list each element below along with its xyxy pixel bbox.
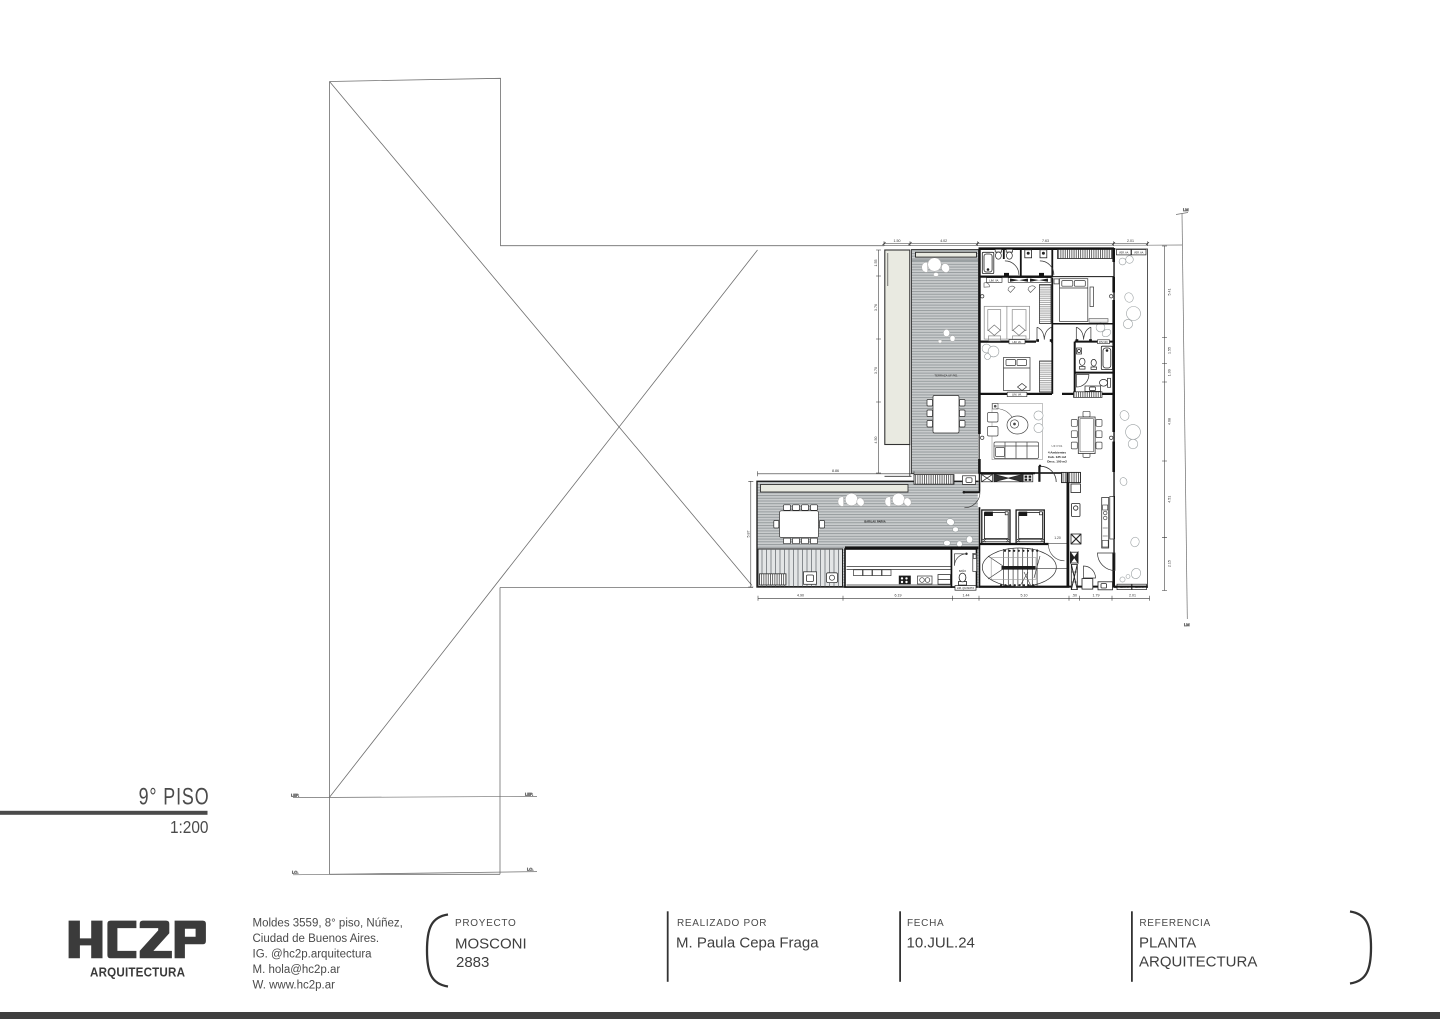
svg-text:LIM. QUINCHO: LIM. QUINCHO	[957, 587, 974, 590]
svg-text:2.15: 2.15	[1168, 560, 1172, 567]
svg-text:IG. @hc2p.arquitectura: IG. @hc2p.arquitectura	[253, 949, 373, 961]
svg-text:2.01: 2.01	[1129, 594, 1136, 598]
svg-text:6.19: 6.19	[895, 594, 902, 598]
svg-text:1.55: 1.55	[874, 260, 878, 267]
svg-text:3.70: 3.70	[874, 367, 878, 374]
svg-text:LEP.: LEP.	[525, 792, 533, 797]
svg-text:PROYECTO: PROYECTO	[455, 918, 517, 929]
svg-text:4.50: 4.50	[874, 437, 878, 444]
svg-text:1:200: 1:200	[170, 818, 209, 837]
svg-text:LIM. VA.: LIM. VA.	[1013, 341, 1022, 344]
svg-text:1.09: 1.09	[1168, 369, 1172, 376]
svg-text:1.44: 1.44	[963, 594, 970, 598]
svg-text:4 Ambientes: 4 Ambientes	[1048, 451, 1067, 455]
svg-text:7.63: 7.63	[1042, 239, 1049, 243]
svg-text:1.50: 1.50	[894, 239, 901, 243]
svg-text:4.90: 4.90	[797, 594, 804, 598]
svg-text:9° PISO: 9° PISO	[139, 783, 210, 810]
svg-text:4.02: 4.02	[940, 239, 947, 243]
svg-text:LM: LM	[1184, 622, 1190, 627]
svg-text:10.JUL.24: 10.JUL.24	[907, 935, 975, 952]
svg-text:1.55: 1.55	[1168, 347, 1172, 354]
svg-text:BAÑO: BAÑO	[959, 570, 966, 573]
svg-text:MOSCONI: MOSCONI	[455, 936, 527, 953]
svg-text:1.20: 1.20	[1054, 536, 1061, 540]
svg-text:BAR/LAV. PARVA: BAR/LAV. PARVA	[864, 520, 885, 524]
svg-text:5.10: 5.10	[1021, 594, 1028, 598]
svg-text:P/S VFC: P/S VFC	[1099, 342, 1108, 344]
svg-text:UF P.01: UF P.01	[1052, 444, 1063, 448]
svg-text:2883: 2883	[456, 954, 489, 971]
svg-text:REFERENCIA: REFERENCIA	[1139, 918, 1210, 929]
svg-text:8.86: 8.86	[832, 469, 839, 473]
svg-text:LO.: LO.	[292, 870, 298, 875]
svg-text:FECHA: FECHA	[907, 918, 944, 929]
svg-text:4.68: 4.68	[1168, 418, 1172, 425]
svg-text:PLANTA: PLANTA	[1139, 935, 1196, 952]
svg-text:M. Paula Cepa Fraga: M. Paula Cepa Fraga	[676, 935, 819, 952]
svg-text:Moldes 3559, 8° piso, Núñez,: Moldes 3559, 8° piso, Núñez,	[253, 918, 403, 930]
svg-text:Cub. 125 m2: Cub. 125 m2	[1048, 455, 1067, 459]
svg-text:5.87: 5.87	[747, 531, 751, 538]
svg-text:3.76: 3.76	[874, 304, 878, 311]
svg-text:.50: .50	[1072, 594, 1077, 598]
svg-text:W. www.hc2p.ar: W. www.hc2p.ar	[253, 980, 336, 992]
svg-text:ARQUITECTURA: ARQUITECTURA	[1139, 954, 1257, 971]
svg-text:LEP.: LEP.	[291, 793, 299, 798]
svg-text:LO.: LO.	[527, 867, 533, 872]
svg-text:LIM. VA.: LIM. VA.	[1012, 393, 1022, 397]
svg-text:5.41: 5.41	[1168, 289, 1172, 296]
svg-text:Desc. 100 m2: Desc. 100 m2	[1047, 460, 1067, 464]
svg-text:2.01: 2.01	[1127, 239, 1134, 243]
svg-text:REALIZADO POR: REALIZADO POR	[677, 918, 767, 929]
svg-text:LM: LM	[1183, 207, 1189, 212]
svg-text:4.51: 4.51	[1168, 496, 1172, 503]
svg-text:ARQUITECTURA: ARQUITECTURA	[90, 965, 185, 979]
svg-text:VER. AA: VER. AA	[1119, 252, 1129, 255]
svg-text:1.79: 1.79	[1093, 594, 1100, 598]
svg-text:VER. AA: VER. AA	[1134, 252, 1144, 255]
svg-text:Ciudad de Buenos Aires.: Ciudad de Buenos Aires.	[253, 933, 380, 945]
svg-text:M. hola@hc2p.ar: M. hola@hc2p.ar	[253, 964, 341, 976]
svg-text:TERRAZA UF P01: TERRAZA UF P01	[934, 374, 958, 378]
svg-text:LIM. VA.: LIM. VA.	[989, 278, 999, 282]
